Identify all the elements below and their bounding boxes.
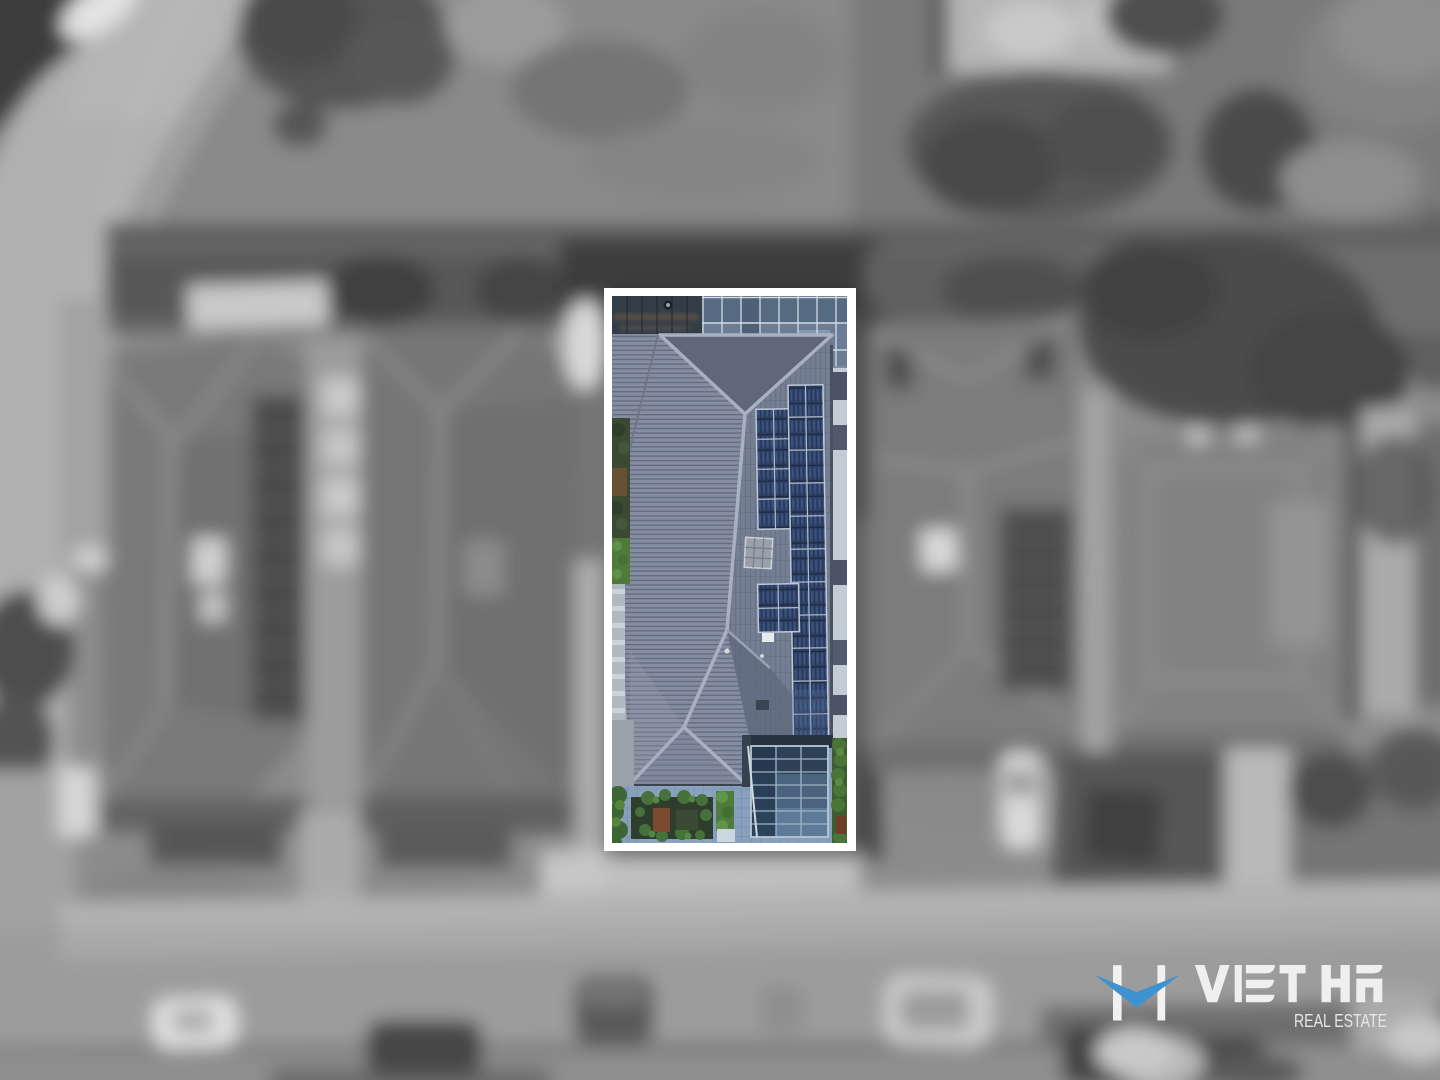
svg-text:REAL ESTATE: REAL ESTATE (1294, 1011, 1387, 1031)
